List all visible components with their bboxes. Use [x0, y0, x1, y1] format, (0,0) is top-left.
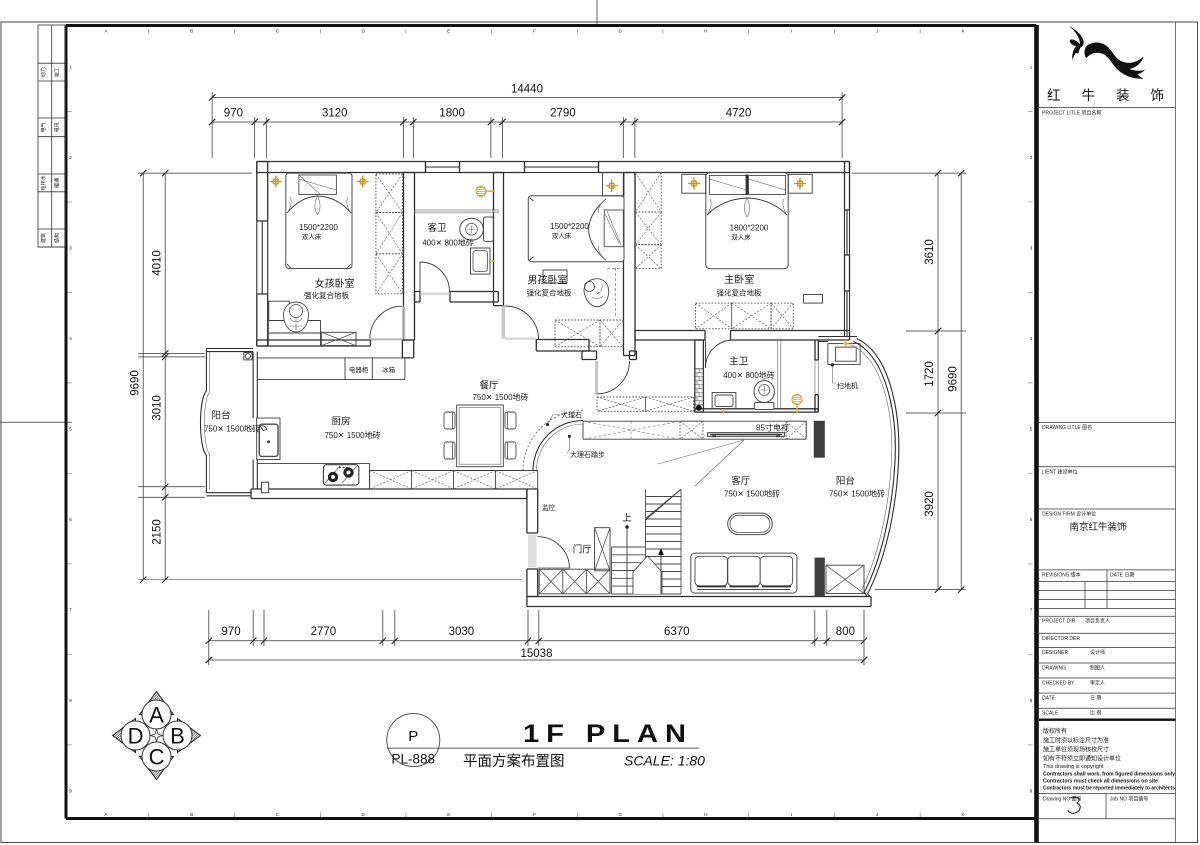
svg-text:970: 970	[221, 626, 240, 638]
svg-text:G: G	[618, 29, 622, 34]
svg-text:电气: 电气	[40, 122, 47, 132]
svg-text:LIENT 建设单位: LIENT 建设单位	[1042, 468, 1077, 475]
svg-text:DATE: DATE	[1042, 696, 1056, 702]
svg-text:F: F	[533, 29, 536, 34]
svg-text:|: |	[148, 29, 149, 34]
svg-text:餐厅: 餐厅	[479, 380, 499, 392]
svg-text:4010: 4010	[152, 250, 164, 276]
svg-text:|: |	[662, 29, 663, 34]
svg-text:双人床: 双人床	[731, 233, 751, 242]
svg-text:上: 上	[622, 513, 632, 524]
svg-text:9690: 9690	[948, 366, 960, 392]
svg-text:|: |	[920, 812, 921, 817]
svg-text:E: E	[447, 29, 450, 34]
svg-text:CHECKED BY: CHECKED BY	[1042, 681, 1075, 687]
svg-text:2150: 2150	[152, 519, 164, 545]
svg-text:大理石踏步: 大理石踏步	[570, 450, 605, 459]
svg-text:|: |	[834, 29, 835, 34]
svg-text:DRAWING LITLE 图名: DRAWING LITLE 图名	[1042, 424, 1092, 431]
svg-text:电器柜: 电器柜	[349, 365, 369, 374]
svg-text:|: |	[405, 29, 406, 34]
svg-text:|: |	[834, 812, 835, 817]
svg-text:1500*2200: 1500*2200	[550, 222, 589, 231]
svg-text:男孩卧室: 男孩卧室	[528, 274, 568, 287]
svg-text:Job NO 项目编号: Job NO 项目编号	[1110, 796, 1148, 803]
svg-text:6370: 6370	[664, 626, 690, 638]
svg-text:|: |	[491, 29, 492, 34]
svg-text:DIRECTOR DER: DIRECTOR DER	[1042, 636, 1080, 642]
svg-text:3030: 3030	[449, 626, 475, 638]
svg-text:|: |	[320, 812, 321, 817]
svg-text:客厅: 客厅	[731, 475, 751, 487]
svg-text:|: |	[68, 563, 73, 564]
svg-text:F: F	[533, 812, 536, 817]
svg-text:制图人: 制图人	[1090, 665, 1105, 672]
svg-text:|: |	[1028, 382, 1033, 383]
svg-text:|: |	[1028, 292, 1033, 293]
svg-text:This drawing is copyright: This drawing is copyright	[1043, 764, 1104, 770]
svg-text:平面方案布置图: 平面方案布置图	[463, 752, 565, 770]
svg-text:B: B	[190, 29, 193, 34]
svg-text:2770: 2770	[311, 626, 337, 638]
svg-text:14440: 14440	[511, 84, 543, 96]
svg-text:DESIGN FIRM 设计单位: DESIGN FIRM 设计单位	[1042, 511, 1096, 518]
svg-text:|: |	[68, 111, 73, 112]
svg-text:3120: 3120	[322, 108, 348, 120]
svg-text:1500*2200: 1500*2200	[299, 223, 338, 232]
svg-text:施工单位须现场核校尺寸: 施工单位须现场核校尺寸	[1043, 746, 1109, 754]
svg-text:设计师: 设计师	[1090, 649, 1105, 656]
svg-text:|: |	[1028, 201, 1033, 202]
svg-text:|: |	[1028, 473, 1033, 474]
svg-text:SCALE: SCALE	[1042, 711, 1059, 717]
svg-text:|: |	[68, 744, 73, 745]
svg-text:DESIGNER: DESIGNER	[1042, 650, 1069, 656]
svg-text:REVISIONS 版本: REVISIONS 版本	[1042, 572, 1081, 579]
svg-text:750✕ 1500地砖: 750✕ 1500地砖	[324, 430, 380, 440]
svg-text:主卫: 主卫	[729, 356, 749, 368]
svg-text:DATE 日期: DATE 日期	[1110, 573, 1134, 579]
svg-text:DRAWING: DRAWING	[1042, 666, 1066, 672]
svg-text:项目负责人: 项目负责人	[1085, 618, 1110, 625]
svg-text:|: |	[68, 292, 73, 293]
svg-text:强化复合地板: 强化复合地板	[304, 290, 349, 300]
svg-text:|: |	[491, 812, 492, 817]
svg-text:|: |	[1028, 111, 1033, 112]
svg-text:客卫: 客卫	[427, 222, 447, 234]
svg-text:审定人: 审定人	[1090, 680, 1105, 687]
svg-text:G: G	[618, 812, 622, 817]
svg-text:|: |	[68, 201, 73, 202]
svg-text:K: K	[961, 29, 964, 34]
svg-text:|: |	[748, 29, 749, 34]
svg-text:强化复合地板: 强化复合地板	[717, 288, 762, 298]
svg-text:A: A	[104, 812, 107, 817]
svg-text:如有不符须立即通知设计单位: 如有不符须立即通知设计单位	[1043, 755, 1121, 763]
svg-text:|: |	[234, 29, 235, 34]
svg-text:3610: 3610	[924, 239, 936, 265]
svg-text:85寸电视: 85寸电视	[756, 422, 789, 432]
svg-text:Contractors must check all dim: Contractors must check all dimensions on…	[1043, 779, 1158, 785]
svg-text:3010: 3010	[152, 395, 164, 421]
svg-text:比 例: 比 例	[1090, 710, 1101, 717]
svg-text:|: |	[662, 812, 663, 817]
svg-text:给排水: 给排水	[40, 175, 47, 190]
svg-text:Contractors must be reported i: Contractors must be reported immediately…	[1043, 786, 1175, 792]
svg-text:D: D	[128, 724, 144, 749]
svg-text:400✕ 800地砖: 400✕ 800地砖	[723, 370, 775, 380]
svg-text:PROJECT LITLE 项目名称: PROJECT LITLE 项目名称	[1042, 110, 1101, 117]
svg-text:PROJECT DIR: PROJECT DIR	[1042, 619, 1076, 625]
svg-text:|: |	[1028, 563, 1033, 564]
svg-text:|: |	[68, 654, 73, 655]
svg-text:建筑: 建筑	[40, 233, 47, 243]
svg-text:|: |	[748, 812, 749, 817]
svg-text:阳台: 阳台	[836, 475, 855, 487]
svg-text:动力: 动力	[40, 67, 47, 77]
svg-text:|: |	[148, 812, 149, 817]
svg-text:400✕ 800地砖: 400✕ 800地砖	[422, 238, 474, 248]
svg-text:A: A	[149, 703, 164, 728]
svg-text:阳台: 阳台	[211, 410, 230, 422]
svg-text:P: P	[408, 728, 418, 745]
svg-text:Contractors shall work, from f: Contractors shall work, from figured dim…	[1043, 772, 1175, 778]
svg-text:|: |	[920, 29, 921, 34]
svg-text:I: I	[791, 812, 792, 817]
svg-text:|: |	[68, 382, 73, 383]
svg-text:2790: 2790	[550, 108, 576, 120]
svg-text:|: |	[68, 473, 73, 474]
svg-text:750✕ 1500地砖: 750✕ 1500地砖	[724, 489, 780, 499]
svg-text:门厅: 门厅	[573, 544, 593, 556]
svg-text:|: |	[1028, 654, 1033, 655]
svg-text:9690: 9690	[130, 370, 142, 396]
svg-text:|: |	[320, 29, 321, 34]
svg-text:女孩卧室: 女孩卧室	[315, 277, 355, 290]
svg-text:1F PLAN: 1F PLAN	[523, 720, 693, 748]
svg-text:双人床: 双人床	[302, 232, 322, 241]
svg-text:B: B	[190, 812, 193, 817]
svg-text:冰箱: 冰箱	[382, 365, 396, 374]
svg-text:厨房: 厨房	[331, 416, 350, 428]
svg-text:|: |	[234, 812, 235, 817]
svg-text:1720: 1720	[924, 361, 936, 387]
svg-text:1800*2200: 1800*2200	[730, 224, 769, 233]
svg-text:E: E	[447, 812, 450, 817]
svg-text:H: H	[704, 812, 707, 817]
svg-text:C: C	[149, 745, 165, 770]
svg-text:J: J	[876, 812, 878, 817]
svg-text:A: A	[104, 29, 107, 34]
svg-text:电讯: 电讯	[54, 122, 61, 132]
svg-text:|: |	[577, 29, 578, 34]
svg-text:监控: 监控	[542, 503, 556, 512]
svg-text:扫地机: 扫地机	[837, 381, 858, 390]
svg-text:SCALE: 1:80: SCALE: 1:80	[624, 753, 705, 769]
svg-text:大理石: 大理石	[561, 411, 582, 420]
svg-text:B: B	[170, 724, 185, 749]
svg-text:750✕ 1500地砖: 750✕ 1500地砖	[829, 489, 885, 499]
svg-text:K: K	[961, 812, 964, 817]
svg-text:红牛装饰: 红牛装饰	[1047, 88, 1185, 103]
svg-text:结构: 结构	[54, 233, 61, 243]
svg-text:J: J	[876, 29, 878, 34]
svg-text:15038: 15038	[521, 648, 553, 660]
svg-text:750✕ 1500地砖: 750✕ 1500地砖	[472, 392, 528, 402]
svg-text:H: H	[704, 29, 707, 34]
svg-text:暖通: 暖通	[54, 178, 61, 188]
svg-text:750✕ 1500地砖: 750✕ 1500地砖	[204, 424, 260, 434]
svg-text:施工时须以标注尺寸为准: 施工时须以标注尺寸为准	[1043, 737, 1109, 745]
svg-text:800: 800	[836, 626, 855, 638]
svg-text:PL-888: PL-888	[392, 752, 436, 767]
svg-text:竣工: 竣工	[54, 67, 61, 77]
svg-text:3920: 3920	[924, 491, 936, 517]
svg-text:南京红牛装饰: 南京红牛装饰	[1069, 521, 1126, 533]
svg-text:1800: 1800	[439, 108, 465, 120]
svg-text:主卧室: 主卧室	[724, 273, 754, 286]
svg-text:|: |	[577, 812, 578, 817]
svg-text:|: |	[1028, 744, 1033, 745]
svg-text:|: |	[405, 812, 406, 817]
svg-text:I: I	[791, 29, 792, 34]
svg-text:4720: 4720	[726, 108, 752, 120]
svg-text:970: 970	[224, 108, 243, 120]
svg-text:强化复合地板: 强化复合地板	[527, 288, 572, 298]
svg-text:版权所有: 版权所有	[1043, 727, 1067, 735]
svg-text:日 期: 日 期	[1090, 696, 1101, 702]
svg-text:双人床: 双人床	[552, 231, 572, 240]
